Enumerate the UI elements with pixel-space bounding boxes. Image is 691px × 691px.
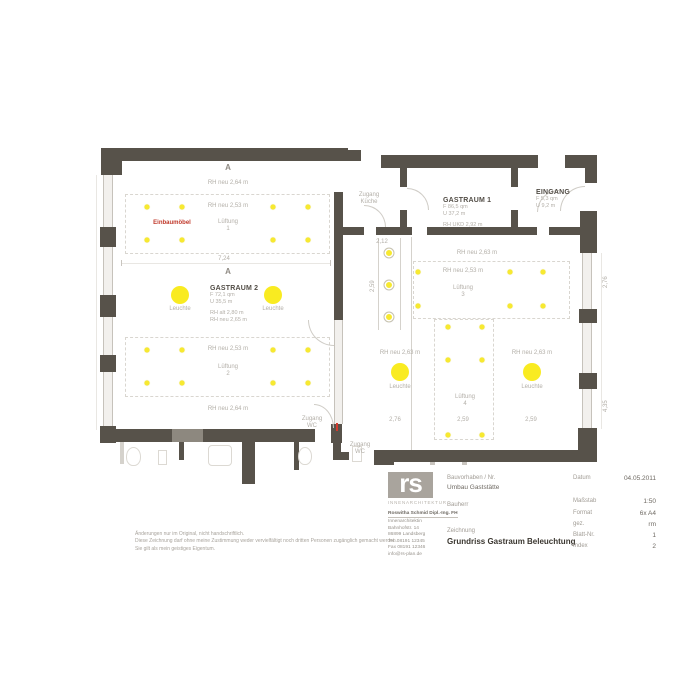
leuchte-label-3: Leuchte — [389, 384, 410, 391]
ceiling-spot-light — [271, 348, 276, 353]
zugang-word: Zugang — [359, 192, 379, 198]
einbaumoebel-label: Einbaumöbel — [153, 220, 191, 226]
gastraum1-area: F 86,5 qm — [443, 204, 491, 211]
lueftung-4-label: Lüftung 4 — [455, 394, 475, 408]
ceiling-spot-light — [416, 270, 421, 275]
index-label: Index — [573, 543, 588, 549]
gastraum2-rh-neu: RH neu 2,65 m — [210, 317, 258, 324]
ceiling-spot-light — [541, 270, 546, 275]
ceiling-spot-light — [480, 325, 485, 330]
dim-right-1: 2,76 — [603, 276, 610, 288]
company-address-block: Roswitha Schmid Dipl.-Ing. FH Innenarchi… — [388, 511, 458, 558]
bauvorhaben-value: Umbau Gaststätte — [447, 484, 499, 491]
lueftung-word: Lüftung — [453, 285, 473, 291]
blatt-label: Blatt-Nr. — [573, 532, 595, 538]
rh-label-band2: RH neu 2,53 m — [208, 346, 248, 353]
disclaimer-text: Änderungen nur im Original, nicht handsc… — [135, 531, 397, 553]
format-value: 6x A4 — [596, 510, 656, 517]
ceiling-spot-light — [180, 238, 185, 243]
dim-276: 2,76 — [389, 417, 401, 424]
ceiling-spot-light — [306, 205, 311, 210]
lueftung-number: 4 — [463, 401, 466, 407]
lueftung-number: 3 — [461, 292, 464, 298]
wc-word: WC — [355, 449, 365, 455]
datum-value: 04.05.2011 — [596, 475, 656, 482]
disclaimer-line: Sie gilt als mein geistiges Eigentum. — [135, 546, 215, 552]
recessed-light — [384, 280, 395, 291]
rh-label-right-band: RH neu 2,53 m — [443, 268, 483, 275]
leuchte-label-1: Leuchte — [169, 306, 190, 313]
bauherr-label: Bauherr — [447, 502, 468, 508]
wc-word: WC — [307, 423, 317, 429]
lueftung-word: Lüftung — [218, 364, 238, 370]
ceiling-spot-light — [541, 304, 546, 309]
ceiling-spot-light — [145, 381, 150, 386]
rh-label-bottom: RH neu 2,64 m — [208, 406, 248, 413]
ceiling-spot-light — [271, 238, 276, 243]
rh-label-top: RH neu 2,64 m — [208, 180, 248, 187]
ceiling-spot-light — [145, 348, 150, 353]
ceiling-spot-light — [271, 381, 276, 386]
dim-724: 7,24 — [218, 256, 230, 263]
address-line: Roswitha Schmid Dipl.-Ing. FH — [388, 511, 458, 518]
company-logo: rs — [388, 472, 433, 498]
rh-label-circle-left: RH neu 2,63 m — [380, 350, 420, 357]
ceiling-spot-light — [480, 433, 485, 438]
gez-value: rm — [596, 521, 656, 528]
floor-plan-sheet: A RH neu 2,64 m RH neu 2,53 m Lüftung 1 … — [0, 0, 691, 691]
company-logo-tagline: INNENARCHITEKTUR — [388, 500, 433, 505]
format-label: Format — [573, 510, 592, 516]
ceiling-spot-light — [180, 348, 185, 353]
ceiling-spot-light — [145, 238, 150, 243]
ceiling-spot-light — [480, 358, 485, 363]
index-value: 2 — [596, 543, 656, 550]
zugang-wc-label-1: Zugang WC — [302, 416, 322, 430]
rh-label-right-top: RH neu 2,63 m — [457, 250, 497, 257]
pendant-light — [391, 363, 409, 381]
gastraum2-rh-alt: RH alt 2,80 m — [210, 310, 258, 317]
gastraum1-rh: RH UKD 2,92 m — [443, 222, 491, 229]
ceiling-spot-light — [446, 358, 451, 363]
dim-right-2: 4,35 — [603, 400, 610, 412]
recessed-light — [384, 312, 395, 323]
zugang-word: Zugang — [302, 416, 322, 422]
zugang-kueche-label: Zugang Küche — [359, 192, 379, 206]
eingang-name: EINGANG — [536, 189, 570, 196]
room-label-gastraum1: GASTRAUM 1 F 86,5 qm U 37,2 m RH UKD 2,9… — [443, 197, 491, 229]
pendant-light — [264, 286, 282, 304]
ceiling-spot-light — [306, 348, 311, 353]
ceiling-spot-light — [508, 270, 513, 275]
section-marker-top: A — [225, 163, 231, 172]
ceiling-spot-light — [145, 205, 150, 210]
gastraum2-perimeter: U 35,5 m — [210, 299, 258, 306]
drawing-title: Grundriss Gastraum Beleuchtung — [447, 537, 575, 546]
ceiling-spot-light — [271, 205, 276, 210]
kueche-word: Küche — [360, 199, 377, 205]
lueftung-number: 2 — [226, 371, 229, 377]
lueftung-1-label: Lüftung 1 — [218, 219, 238, 233]
ceiling-spot-light — [416, 304, 421, 309]
lueftung-2-label: Lüftung 2 — [218, 364, 238, 378]
gastraum2-name: GASTRAUM 2 — [210, 285, 258, 292]
address-line: Innenarchitektin — [388, 519, 422, 524]
lights-layer — [0, 0, 691, 691]
rh-label-band1: RH neu 2,53 m — [208, 203, 248, 210]
gastraum1-perimeter: U 37,2 m — [443, 211, 491, 218]
lueftung-word: Lüftung — [218, 219, 238, 225]
recessed-light — [384, 248, 395, 259]
leuchte-label-2: Leuchte — [262, 306, 283, 313]
gez-label: gez. — [573, 521, 584, 527]
dim-259-b: 2,59 — [525, 417, 537, 424]
rh-label-circle-right: RH neu 2,63 m — [512, 350, 552, 357]
room-label-eingang: EINGANG F 5,3 qm U 9,2 m — [536, 189, 570, 210]
ceiling-spot-light — [306, 381, 311, 386]
ceiling-spot-light — [508, 304, 513, 309]
ceiling-spot-light — [446, 433, 451, 438]
ceiling-spot-light — [180, 205, 185, 210]
dim-212: 2,12 — [376, 239, 388, 246]
zugang-word: Zugang — [350, 442, 370, 448]
ceiling-spot-light — [446, 325, 451, 330]
blatt-value: 1 — [596, 532, 656, 539]
room-label-gastraum2: GASTRAUM 2 F 72,1 qm U 35,5 m RH alt 2,8… — [210, 285, 258, 325]
zeichnung-label: Zeichnung — [447, 528, 475, 534]
pendant-light — [523, 363, 541, 381]
dim-corridor-v: 2,59 — [370, 280, 377, 292]
massstab-value: 1:50 — [596, 498, 656, 505]
zugang-wc-label-2: Zugang WC — [350, 442, 370, 456]
disclaimer-line: Diese Zeichnung darf ohne meine Zustimmu… — [135, 538, 397, 544]
leuchte-label-4: Leuchte — [521, 384, 542, 391]
disclaimer-line: Änderungen nur im Original, nicht handsc… — [135, 531, 244, 537]
lueftung-word: Lüftung — [455, 394, 475, 400]
lueftung-number: 1 — [226, 226, 229, 232]
ceiling-spot-light — [306, 238, 311, 243]
gastraum1-name: GASTRAUM 1 — [443, 197, 491, 204]
gastraum2-area: F 72,1 qm — [210, 292, 258, 299]
ceiling-spot-light — [180, 381, 185, 386]
dim-259-a: 2,59 — [457, 417, 469, 424]
massstab-label: Maßstab — [573, 498, 596, 504]
eingang-perimeter: U 9,2 m — [536, 203, 570, 210]
section-marker-mid: A — [225, 267, 231, 276]
bauvorhaben-label: Bauvorhaben / Nr. — [447, 475, 495, 481]
datum-label: Datum — [573, 475, 591, 481]
eingang-area: F 5,3 qm — [536, 196, 570, 203]
pendant-light — [171, 286, 189, 304]
lueftung-3-label: Lüftung 3 — [453, 285, 473, 299]
